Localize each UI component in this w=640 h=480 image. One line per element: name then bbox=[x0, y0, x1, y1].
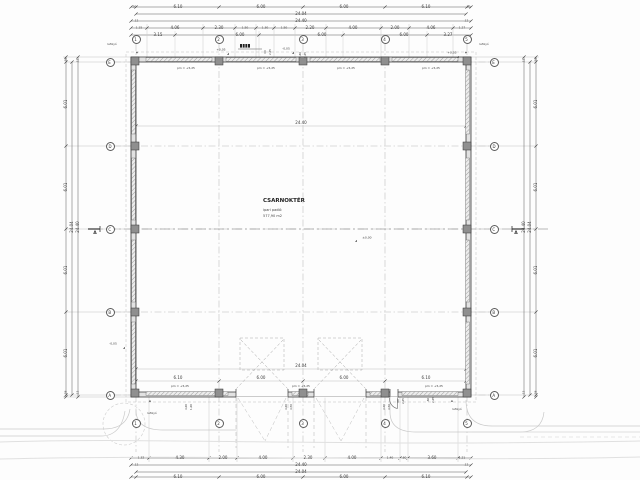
dim-label: 24.04 bbox=[295, 470, 306, 474]
grid-bubble-label: D bbox=[108, 144, 111, 149]
dim-label: 2,05 bbox=[403, 398, 406, 404]
grid-bubble-row-B-left: B bbox=[106, 308, 115, 317]
dim-label: pm = +5,25 bbox=[422, 68, 440, 71]
dim-label: 6.10 bbox=[174, 376, 183, 380]
grid-bubble-label: C bbox=[109, 227, 112, 232]
dim-label: 2.00 bbox=[391, 26, 400, 30]
dim-label: 4.00 bbox=[348, 456, 357, 460]
dim-label: 6.00 bbox=[257, 5, 266, 9]
room-floor-type: ipari padló bbox=[263, 208, 305, 212]
dim-label: 6.00 bbox=[257, 475, 266, 479]
dim-label: 2,05 bbox=[270, 49, 273, 55]
dim-label: 3.27 bbox=[444, 33, 453, 37]
dim-label: 1.30 bbox=[262, 27, 269, 30]
dim-label: .28 bbox=[65, 391, 68, 396]
dim-label: lefolyó bbox=[147, 413, 156, 416]
grid-bubble-label: 1 bbox=[135, 421, 138, 426]
dim-label: 1.15 bbox=[136, 27, 143, 30]
dim-label: 6.01 bbox=[64, 349, 68, 358]
dim-label: ▲ bbox=[451, 400, 453, 403]
dim-label: 24.04 bbox=[528, 221, 532, 232]
dim-label: .12 bbox=[464, 20, 469, 23]
dim-label: 6.00 bbox=[340, 376, 349, 380]
dim-label: .28 bbox=[535, 58, 538, 63]
dim-label: 2.30 bbox=[304, 456, 313, 460]
grid-bubble-label: A bbox=[493, 393, 496, 398]
dim-label: 4,00 bbox=[186, 404, 189, 410]
grid-bubble-label: 1 bbox=[135, 37, 138, 42]
grid-bubble-row-D-right: D bbox=[490, 142, 499, 151]
grid-bubble-col-2-bottom: 2 bbox=[215, 419, 224, 428]
grid-bubble-label: 2 bbox=[218, 37, 221, 42]
dim-label: 24.04 bbox=[295, 364, 306, 368]
grid-bubble-label: 5 bbox=[466, 37, 469, 42]
dim-label: 6.00 bbox=[318, 33, 327, 37]
dim-label: 1.32 bbox=[138, 457, 145, 460]
dim-label: ±0,00 bbox=[362, 237, 371, 240]
dim-label: .12 bbox=[134, 20, 139, 23]
section-marker-a-right: A bbox=[514, 231, 517, 236]
dim-label: 6.00 bbox=[340, 5, 349, 9]
dim-label: 1,05 bbox=[305, 52, 308, 58]
dim-label: .12 bbox=[523, 391, 526, 396]
grid-bubble-col-4-bottom: 4 bbox=[381, 419, 390, 428]
room-label: CSARNOKTÉR ipari padló 577,90 m2 bbox=[263, 197, 347, 222]
dim-label: 6.01 bbox=[64, 100, 68, 109]
grid-bubble-col-3-bottom: 3 bbox=[299, 419, 308, 428]
dim-label: 6.10 bbox=[174, 5, 183, 9]
dim-label: 24.40 bbox=[295, 19, 306, 23]
grid-bubble-row-C-right: C bbox=[490, 225, 499, 234]
dim-label: lefolyó bbox=[452, 409, 461, 412]
dim-label: ◢ bbox=[355, 240, 357, 243]
dim-label: 6.10 bbox=[422, 5, 431, 9]
grid-bubble-col-2-top: 2 bbox=[215, 35, 224, 44]
dim-label: +0,05 bbox=[216, 49, 225, 52]
dim-label: 4,00 bbox=[384, 404, 387, 410]
dim-label: 24.40 bbox=[295, 121, 306, 125]
grid-bubble-label: 2 bbox=[218, 421, 221, 426]
dim-label: 6.01 bbox=[534, 349, 538, 358]
grid-bubble-row-B-right: B bbox=[490, 308, 499, 317]
annotation-layer: .206.106.006.006.10.2024.04.1224.40.121.… bbox=[0, 0, 640, 480]
dim-label: 24.40 bbox=[76, 221, 80, 232]
dim-label: 1.21 bbox=[459, 457, 466, 460]
dim-label: pm = +5,25 bbox=[257, 68, 275, 71]
grid-bubble-label: 5 bbox=[466, 421, 469, 426]
grid-bubble-label: B bbox=[493, 310, 496, 315]
dim-label: .12 bbox=[77, 59, 80, 64]
grid-bubble-col-5-bottom: 5 bbox=[463, 419, 472, 428]
dim-label: 6.01 bbox=[64, 183, 68, 192]
dim-label: pm = +5,25 bbox=[425, 386, 443, 389]
grid-bubble-label: 3 bbox=[302, 37, 305, 42]
dim-label: 6.01 bbox=[64, 266, 68, 275]
dim-label: lefolyó bbox=[479, 44, 488, 47]
grid-bubble-col-4-top: 4 bbox=[381, 35, 390, 44]
dim-label: ▼ bbox=[136, 52, 138, 55]
grid-bubble-col-5-top: 5 bbox=[463, 35, 472, 44]
grid-bubble-col-1-top: 1 bbox=[132, 35, 141, 44]
dim-label: ▼ bbox=[465, 52, 467, 55]
dim-label: 3.60 bbox=[428, 456, 437, 460]
dim-label: 4.06 bbox=[427, 26, 436, 30]
grid-bubble-label: E bbox=[109, 60, 112, 65]
dim-label: ,60 bbox=[428, 398, 431, 402]
grid-bubble-row-E-left: E bbox=[106, 58, 115, 67]
dim-label: 2.00 bbox=[219, 456, 228, 460]
dim-label: 4,50 bbox=[291, 404, 294, 410]
dim-label: 6.00 bbox=[340, 475, 349, 479]
grid-bubble-label: B bbox=[109, 310, 112, 315]
dim-label: 4,50 bbox=[389, 404, 392, 410]
dim-label: 6.01 bbox=[534, 100, 538, 109]
dim-label: 24.40 bbox=[295, 463, 306, 467]
dim-label: 2,05 bbox=[433, 397, 436, 403]
dim-label: .12 bbox=[134, 464, 139, 467]
grid-bubble-label: 3 bbox=[302, 421, 305, 426]
dim-label: 6.00 bbox=[236, 33, 245, 37]
dim-label: +0,05 bbox=[447, 52, 456, 55]
dim-label: .60 bbox=[402, 457, 407, 460]
dim-label: pm = +5,25 bbox=[171, 386, 189, 389]
dim-label: 2.20 bbox=[306, 26, 315, 30]
dim-label: ◢ bbox=[123, 347, 125, 350]
grid-bubble-col-3-top: 3 bbox=[299, 35, 308, 44]
dim-label: 24.04 bbox=[295, 12, 306, 16]
grid-bubble-col-1-bottom: 1 bbox=[132, 419, 141, 428]
dim-label: 1.40 bbox=[387, 457, 394, 460]
dim-label: ◢ bbox=[227, 53, 229, 56]
dim-label: 90 bbox=[265, 50, 268, 53]
dim-label: 1.50 bbox=[281, 27, 288, 30]
dim-label: .20 bbox=[132, 6, 137, 9]
floor-plan-sheet: .206.106.006.006.10.2024.04.1224.40.121.… bbox=[0, 0, 640, 480]
dim-label: -0,05 bbox=[109, 343, 117, 346]
dim-label: 6.10 bbox=[422, 475, 431, 479]
dim-label: 4,00 bbox=[286, 404, 289, 410]
dim-label: ◢ bbox=[457, 56, 459, 59]
grid-bubble-row-C-left: C bbox=[106, 225, 115, 234]
room-name: CSARNOKTÉR bbox=[263, 197, 305, 204]
dim-label: ◢ bbox=[292, 52, 294, 55]
dim-label: 6.10 bbox=[422, 376, 431, 380]
grid-bubble-label: 4 bbox=[384, 421, 387, 426]
dim-label: .12 bbox=[523, 59, 526, 64]
dim-label: 4.06 bbox=[171, 26, 180, 30]
dim-label: .12 bbox=[77, 391, 80, 396]
grid-bubble-label: A bbox=[109, 393, 112, 398]
dim-label: -0,05 bbox=[282, 48, 290, 51]
room-area: 577,90 m2 bbox=[263, 214, 305, 218]
dim-label: 90 bbox=[398, 399, 401, 402]
dim-label: .20 bbox=[466, 6, 471, 9]
dim-label: pm = +5,25 bbox=[337, 68, 355, 71]
section-marker-a-left: A bbox=[93, 231, 96, 236]
grid-bubble-label: E bbox=[493, 60, 496, 65]
dim-label: 3.15 bbox=[154, 33, 163, 37]
dim-label: ▲ bbox=[149, 400, 151, 403]
grid-bubble-label: D bbox=[492, 144, 495, 149]
dim-label: 6.01 bbox=[534, 266, 538, 275]
grid-bubble-label: 4 bbox=[384, 37, 387, 42]
grid-bubble-row-E-right: E bbox=[490, 58, 499, 67]
dim-label: .28 bbox=[535, 391, 538, 396]
dim-label: 1.50 bbox=[242, 27, 249, 30]
grid-bubble-row-A-right: A bbox=[490, 391, 499, 400]
dim-label: .28 bbox=[65, 58, 68, 63]
dim-label: 6.01 bbox=[534, 183, 538, 192]
dim-label: 1,00 bbox=[191, 404, 194, 410]
dim-label: 4.00 bbox=[349, 26, 358, 30]
dim-label: pm = +5,25 bbox=[177, 68, 195, 71]
dim-label: 4.30 bbox=[176, 456, 185, 460]
dim-label: 24.04 bbox=[70, 221, 74, 232]
dim-label: 2.30 bbox=[215, 26, 224, 30]
dim-label: 4.00 bbox=[259, 456, 268, 460]
dim-label: 6.00 bbox=[257, 376, 266, 380]
dim-label: 24.40 bbox=[522, 221, 526, 232]
grid-bubble-label: C bbox=[493, 227, 496, 232]
dim-label: 6.00 bbox=[400, 33, 409, 37]
grid-bubble-row-A-left: A bbox=[106, 391, 115, 400]
dim-label: pm = +5,25 bbox=[292, 386, 310, 389]
dim-label: 1,60 bbox=[300, 52, 303, 58]
dim-label: lefolyó bbox=[107, 44, 116, 47]
dim-label: .12 bbox=[464, 464, 469, 467]
dim-label: 1.27 bbox=[459, 27, 466, 30]
grid-bubble-row-D-left: D bbox=[106, 142, 115, 151]
dim-label: 6.10 bbox=[174, 475, 183, 479]
